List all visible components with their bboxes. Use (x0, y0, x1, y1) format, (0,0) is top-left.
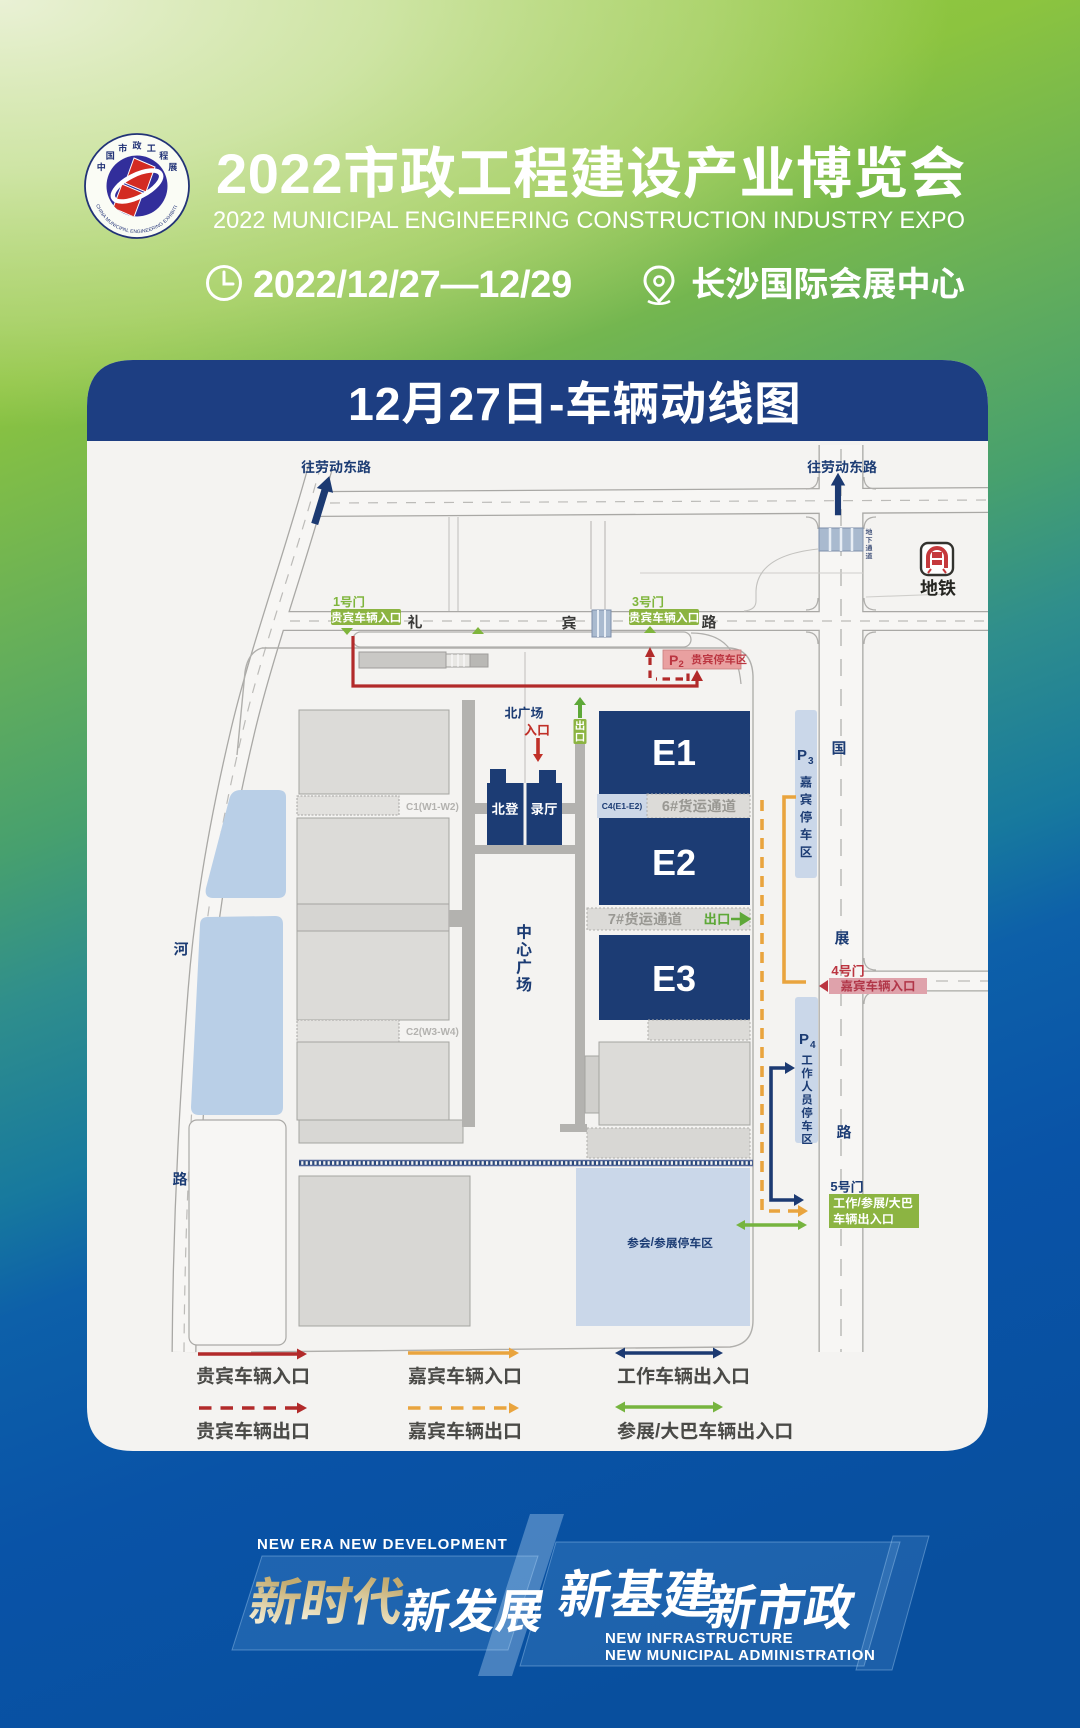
svg-text:/: / (655, 1421, 661, 1442)
svg-text:C2(W3-W4): C2(W3-W4) (406, 1027, 459, 1038)
svg-text:C1(W1-W2): C1(W1-W2) (406, 802, 459, 813)
svg-text:27: 27 (448, 378, 501, 430)
svg-text:C4(E1-E2): C4(E1-E2) (602, 801, 643, 811)
svg-text:NEW MUNICIPAL ADMINISTRATION: NEW MUNICIPAL ADMINISTRATION (605, 1647, 875, 1664)
svg-text:P: P (797, 747, 807, 764)
svg-text:7#: 7# (608, 912, 624, 928)
svg-text:P: P (799, 1031, 809, 1048)
svg-text:4: 4 (810, 1040, 816, 1051)
svg-text:2022: 2022 (216, 142, 343, 205)
svg-text:3: 3 (632, 595, 639, 609)
svg-text:P: P (669, 652, 678, 668)
svg-text:1: 1 (333, 595, 340, 609)
svg-text:NEW ERA NEW DEVELOPMENT: NEW ERA NEW DEVELOPMENT (257, 1536, 508, 1553)
svg-text:-: - (549, 378, 565, 430)
svg-text:E2: E2 (652, 842, 696, 883)
svg-text:/: / (885, 1195, 889, 1209)
svg-text:12: 12 (348, 378, 401, 430)
svg-text:NEW INFRASTRUCTURE: NEW INFRASTRUCTURE (605, 1630, 793, 1647)
svg-text:E3: E3 (652, 958, 696, 999)
svg-text:2: 2 (679, 659, 684, 670)
svg-text:4: 4 (831, 963, 839, 978)
svg-text:E1: E1 (652, 732, 696, 773)
svg-text:5: 5 (830, 1179, 837, 1194)
svg-text:2022/12/27—12/29: 2022/12/27—12/29 (253, 264, 572, 306)
svg-text:3: 3 (808, 756, 814, 767)
svg-text:2022 MUNICIPAL ENGINEERING CON: 2022 MUNICIPAL ENGINEERING CONSTRUCTION … (213, 207, 965, 234)
svg-text:6#: 6# (662, 799, 678, 815)
